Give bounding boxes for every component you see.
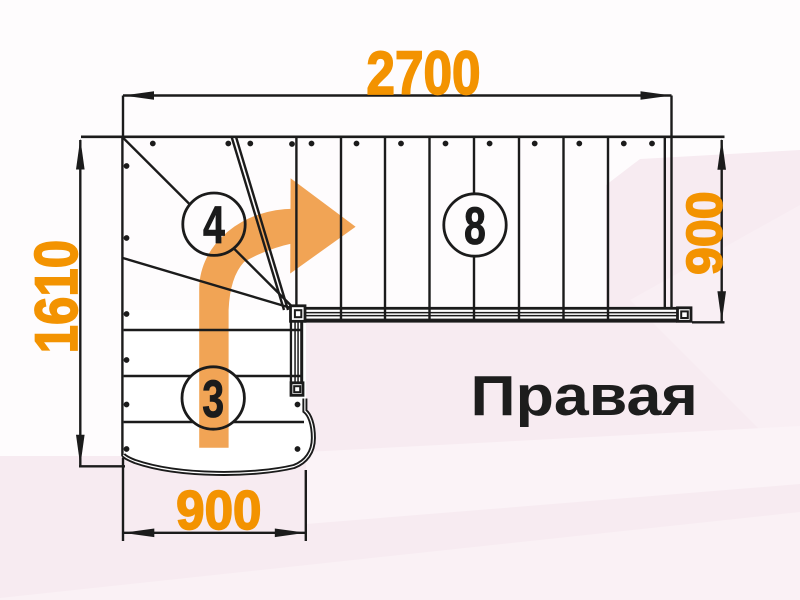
svg-text:900: 900 bbox=[677, 191, 733, 274]
svg-text:2700: 2700 bbox=[366, 40, 480, 108]
svg-text:4: 4 bbox=[203, 196, 225, 255]
svg-text:Правая: Правая bbox=[471, 364, 698, 428]
svg-text:1610: 1610 bbox=[23, 240, 90, 353]
svg-text:3: 3 bbox=[202, 369, 224, 428]
svg-text:900: 900 bbox=[176, 480, 261, 541]
svg-text:8: 8 bbox=[464, 196, 486, 255]
